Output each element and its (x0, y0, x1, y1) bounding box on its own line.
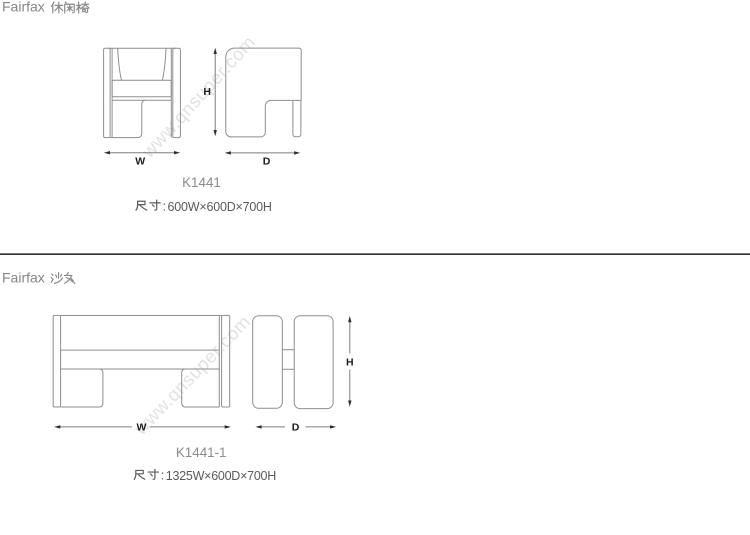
svg-text:Fairfax: Fairfax (2, 269, 45, 285)
svg-text:D: D (263, 155, 271, 167)
svg-text:D: D (292, 421, 300, 433)
svg-text:1325W×600D×700H: 1325W×600D×700H (166, 469, 276, 483)
svg-text:K1441-1: K1441-1 (176, 445, 227, 460)
svg-text:W: W (137, 421, 147, 433)
svg-text:Fairfax: Fairfax (2, 0, 45, 15)
svg-text:K1441: K1441 (182, 175, 221, 190)
svg-text::: : (161, 469, 164, 483)
svg-text:H: H (203, 86, 211, 98)
svg-text::: : (163, 199, 166, 213)
svg-text:600W×600D×700H: 600W×600D×700H (168, 200, 272, 214)
svg-text:W: W (135, 156, 145, 168)
svg-text:H: H (346, 356, 354, 368)
